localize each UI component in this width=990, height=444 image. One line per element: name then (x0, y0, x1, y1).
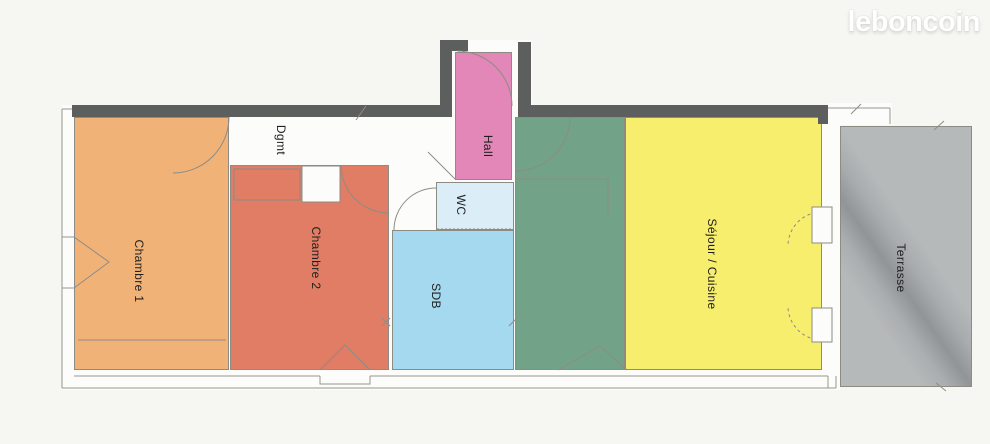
room-label-wc: WC (454, 195, 468, 216)
room-cuisine-zone (515, 117, 625, 370)
room-label-terrasse: Terrasse (894, 243, 908, 292)
room-label-chambre-1: Chambre 1 (132, 240, 146, 303)
room-label-degagement: Dgmt (274, 125, 288, 155)
room-label-chambre-2: Chambre 2 (309, 227, 323, 290)
room-chambre-1 (74, 117, 229, 370)
room-hall (455, 52, 512, 180)
room-sdb (392, 230, 514, 370)
room-label-hall: Hall (481, 135, 495, 157)
room-sejour-cuisine (625, 117, 822, 370)
room-label-sdb: SDB (429, 283, 443, 309)
room-wc (436, 182, 514, 230)
room-degagement (230, 117, 455, 165)
leboncoin-watermark: leboncoin (848, 6, 980, 39)
room-label-sejour-cuisine: Séjour / Cuisine (705, 218, 719, 309)
floorplan: leboncoin Chambre 1DgmtChambre 2HallWCSD… (0, 0, 990, 444)
